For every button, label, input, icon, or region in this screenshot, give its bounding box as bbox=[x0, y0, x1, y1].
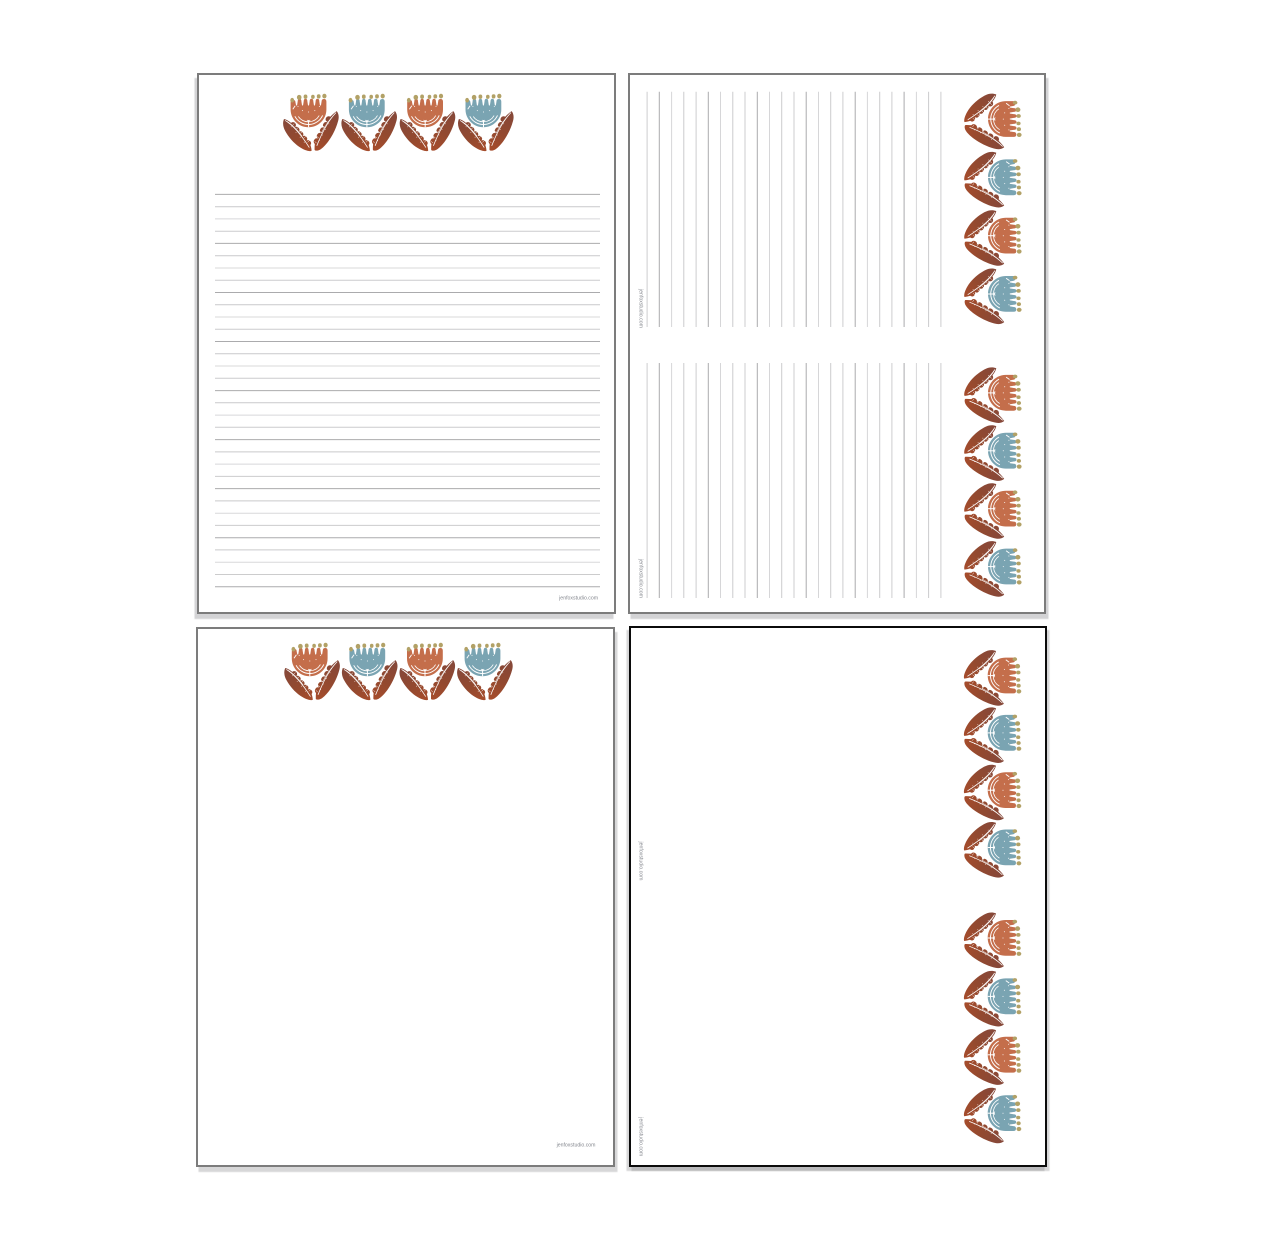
svg-text:jenfoxstudio.com: jenfoxstudio.com bbox=[558, 596, 598, 602]
svg-text:jenfoxstudio.com: jenfoxstudio.com bbox=[637, 1116, 643, 1156]
svg-text:jenfoxstudio.com: jenfoxstudio.com bbox=[637, 841, 643, 881]
svg-text:jenfoxstudio.com: jenfoxstudio.com bbox=[637, 558, 643, 598]
svg-text:jenfoxstudio.com: jenfoxstudio.com bbox=[637, 288, 643, 328]
svg-text:jenfoxstudio.com: jenfoxstudio.com bbox=[556, 1142, 596, 1148]
